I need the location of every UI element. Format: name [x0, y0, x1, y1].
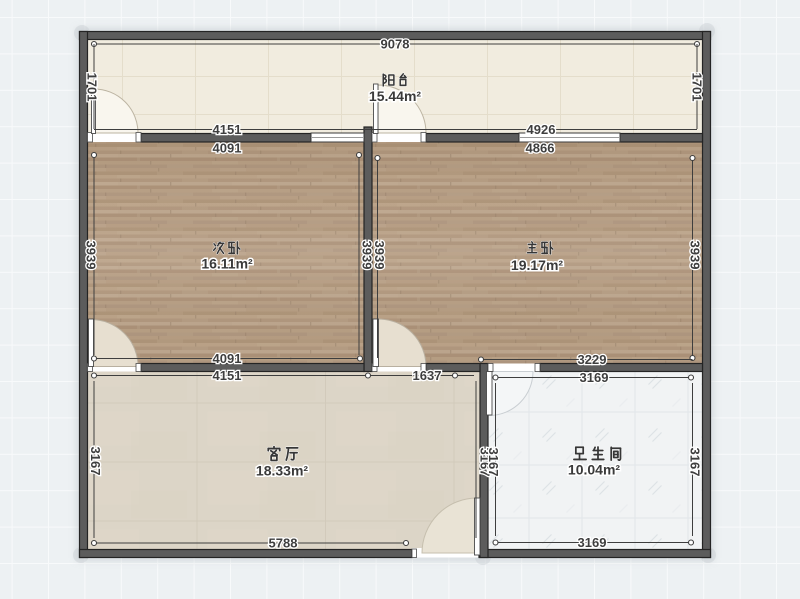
svg-text:4151: 4151	[213, 368, 242, 383]
svg-text:4091: 4091	[213, 351, 242, 366]
svg-text:3939: 3939	[84, 241, 99, 270]
svg-text:3939: 3939	[372, 241, 387, 270]
svg-text:3167: 3167	[88, 447, 103, 476]
svg-text:3229: 3229	[578, 352, 607, 367]
svg-text:4866: 4866	[526, 141, 555, 156]
svg-text:18.33m²: 18.33m²	[256, 463, 308, 479]
svg-text:4151: 4151	[213, 122, 242, 137]
svg-text:1701: 1701	[85, 73, 100, 102]
svg-text:3167: 3167	[486, 448, 501, 477]
svg-text:19.17m²: 19.17m²	[511, 257, 563, 273]
svg-text:10.04m²: 10.04m²	[568, 462, 620, 478]
svg-text:1701: 1701	[690, 73, 705, 102]
svg-text:9078: 9078	[381, 37, 410, 52]
svg-text:16.11m²: 16.11m²	[201, 256, 253, 272]
svg-text:15.44m²: 15.44m²	[369, 88, 421, 104]
svg-text:3167: 3167	[688, 448, 703, 477]
svg-text:3169: 3169	[578, 535, 607, 550]
svg-text:3939: 3939	[688, 241, 703, 270]
svg-text:5788: 5788	[269, 536, 298, 551]
svg-text:3169: 3169	[580, 370, 609, 385]
svg-text:1637: 1637	[413, 368, 442, 383]
svg-text:4926: 4926	[527, 122, 556, 137]
svg-text:4091: 4091	[213, 141, 242, 156]
